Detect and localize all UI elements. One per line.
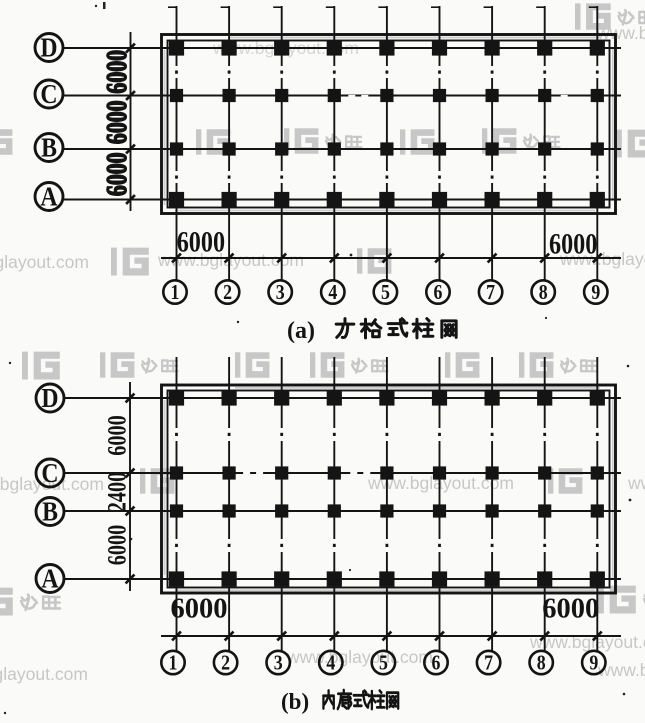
svg-text:A: A [41,563,59,594]
svg-text:8: 8 [539,282,548,305]
svg-text:9: 9 [591,282,600,305]
svg-text:6000: 6000 [542,594,599,625]
svg-text:7: 7 [486,282,495,305]
svg-text:6000: 6000 [102,152,132,196]
svg-text:6000: 6000 [102,50,132,94]
svg-text:www.bglayout.com: www.bglayout.com [0,252,89,272]
svg-text:2400: 2400 [103,472,132,513]
svg-text:A: A [40,181,58,212]
svg-text:9: 9 [589,652,598,675]
svg-text:6000: 6000 [103,415,132,456]
svg-text:1: 1 [169,652,178,675]
svg-text:C: C [41,457,58,488]
svg-text:6000: 6000 [177,225,225,258]
svg-text:6000: 6000 [171,594,228,625]
svg-text:2: 2 [223,282,232,305]
svg-text:7: 7 [484,652,493,675]
svg-text:6000: 6000 [549,227,597,260]
svg-text:6: 6 [434,282,443,305]
svg-text:3: 3 [274,652,283,675]
svg-text:5: 5 [379,652,388,675]
svg-text:4: 4 [328,282,337,305]
svg-text:1: 1 [171,282,180,305]
svg-text:www.bglayout.com: www.bglayout.com [627,473,645,493]
svg-text:D: D [41,382,58,413]
svg-text:B: B [41,132,57,163]
svg-text:D: D [40,32,57,63]
svg-text:5: 5 [381,282,390,305]
svg-text:3: 3 [276,282,285,305]
svg-text:2: 2 [221,652,230,675]
svg-text:(b): (b) [281,689,309,714]
svg-text:6: 6 [432,652,441,675]
svg-text:4: 4 [326,652,335,675]
svg-text:C: C [40,78,57,109]
svg-text:6000: 6000 [103,525,132,566]
svg-text:8: 8 [537,652,546,675]
svg-text:www.bglayout.com: www.bglayout.com [0,664,88,684]
svg-text:www.bglayout.com: www.bglayout.com [286,647,433,667]
svg-text:(a): (a) [287,318,315,344]
svg-text:B: B [42,496,58,527]
svg-text:6000: 6000 [102,100,132,144]
